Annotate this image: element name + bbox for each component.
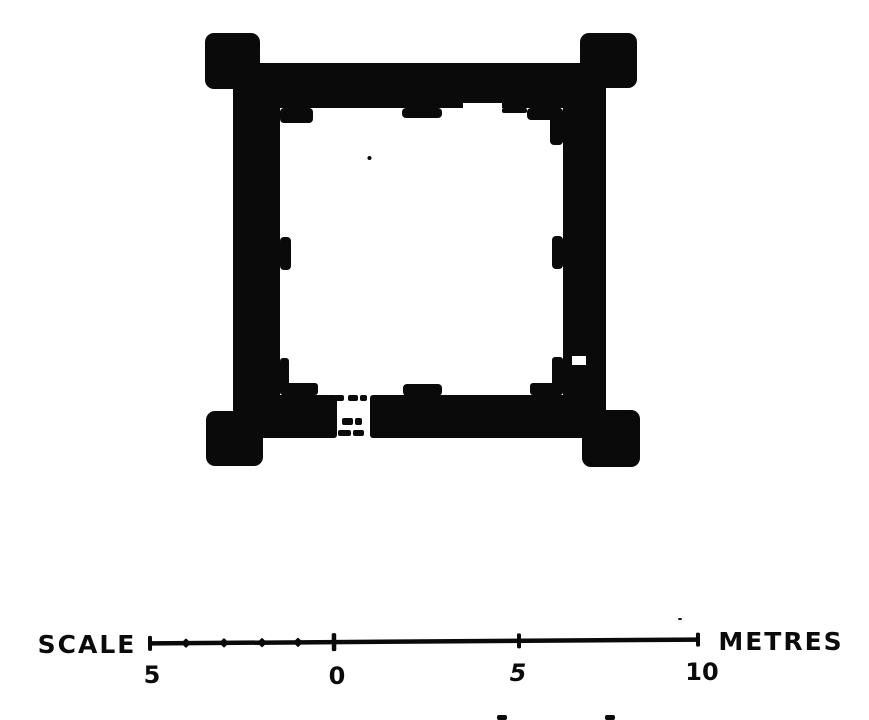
corner-tower-ne — [580, 33, 637, 88]
scale-tick-label: 5 — [144, 661, 161, 689]
scale-tick-label: 10 — [685, 658, 718, 686]
scale-bar-marks — [148, 631, 700, 653]
entrance-dash — [360, 395, 367, 401]
corner-tower-se — [582, 410, 640, 467]
ink-speck — [605, 715, 615, 720]
scale-label: SCALE — [38, 630, 137, 659]
pilaster-south-center — [403, 384, 442, 396]
pilaster-east-mid — [552, 236, 563, 269]
entrance-dash — [342, 418, 353, 425]
wall-west — [233, 63, 280, 438]
floor-plan — [205, 33, 682, 720]
scale-line — [150, 637, 700, 645]
scale-tick-major — [332, 633, 337, 651]
entrance-dash — [334, 395, 344, 401]
corner-tower-nw — [205, 33, 260, 89]
pilaster-sw-step-2 — [280, 383, 318, 395]
entrance-dash — [355, 418, 362, 425]
entrance-dash — [338, 430, 351, 436]
scale-bar: SCALE METRES 50510 — [38, 627, 844, 690]
scale-tick-minor — [181, 638, 191, 648]
floor-plan-figure: SCALE METRES 50510 — [0, 0, 869, 720]
scale-tick-minor — [293, 637, 303, 647]
interior-dot — [368, 156, 372, 160]
wall-south-right — [370, 395, 606, 438]
wall-east — [563, 63, 606, 438]
scale-tick-major — [517, 633, 521, 648]
pilaster-west-mid — [280, 237, 291, 270]
ink-speck — [497, 715, 507, 720]
figure-page: SCALE METRES 50510 — [0, 0, 869, 720]
entrance-dash — [353, 430, 364, 436]
metres-label: METRES — [718, 627, 843, 656]
pilaster-north-right — [502, 108, 527, 113]
ink-speck — [678, 618, 682, 620]
scale-tick-major — [696, 633, 700, 647]
scale-tick-minor — [219, 638, 229, 648]
notch-north-wall — [463, 103, 502, 109]
scale-tick-minor — [257, 638, 267, 648]
entrance-dash — [348, 395, 358, 401]
scale-tick-label: 5 — [510, 659, 527, 687]
corner-tower-sw — [206, 411, 263, 466]
scale-tick-label: 0 — [329, 662, 346, 690]
pilaster-north-center — [402, 108, 442, 118]
pilaster-se-step-2 — [530, 383, 563, 395]
pilaster-nw-corner — [280, 108, 313, 123]
scale-tick-major — [148, 636, 152, 651]
wall-north — [233, 63, 606, 108]
pilaster-ne-step-2 — [550, 108, 563, 145]
notch-east-wall — [572, 356, 586, 365]
scale-bar-numbers: 50510 — [144, 658, 719, 690]
